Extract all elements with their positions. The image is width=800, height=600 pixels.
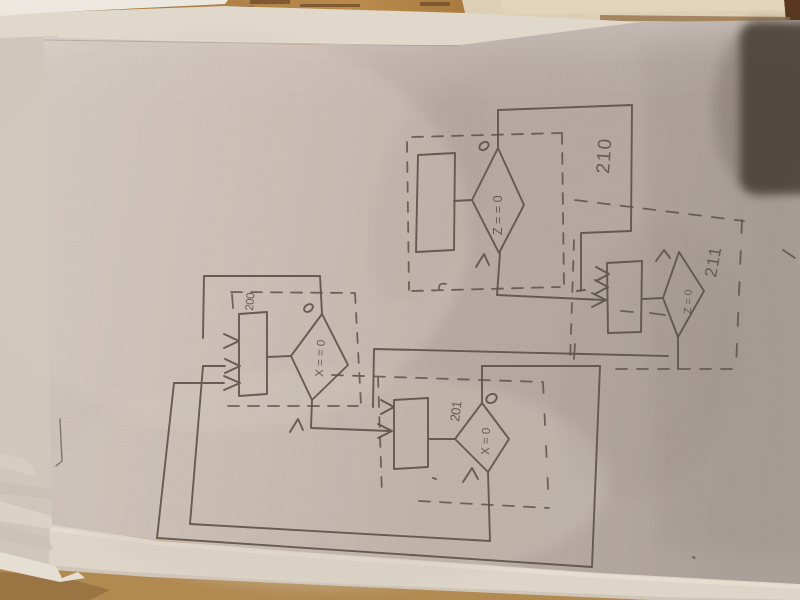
svg-text:X = = 0: X = = 0 [314, 339, 328, 377]
svg-text:Z = 0: Z = 0 [682, 289, 695, 314]
svg-text:Z = = 0: Z = = 0 [491, 195, 505, 235]
svg-text:X = 0: X = 0 [480, 428, 493, 456]
svg-text:210: 210 [593, 137, 616, 175]
svg-text:201: 201 [447, 400, 464, 422]
svg-text:200: 200 [244, 292, 258, 311]
